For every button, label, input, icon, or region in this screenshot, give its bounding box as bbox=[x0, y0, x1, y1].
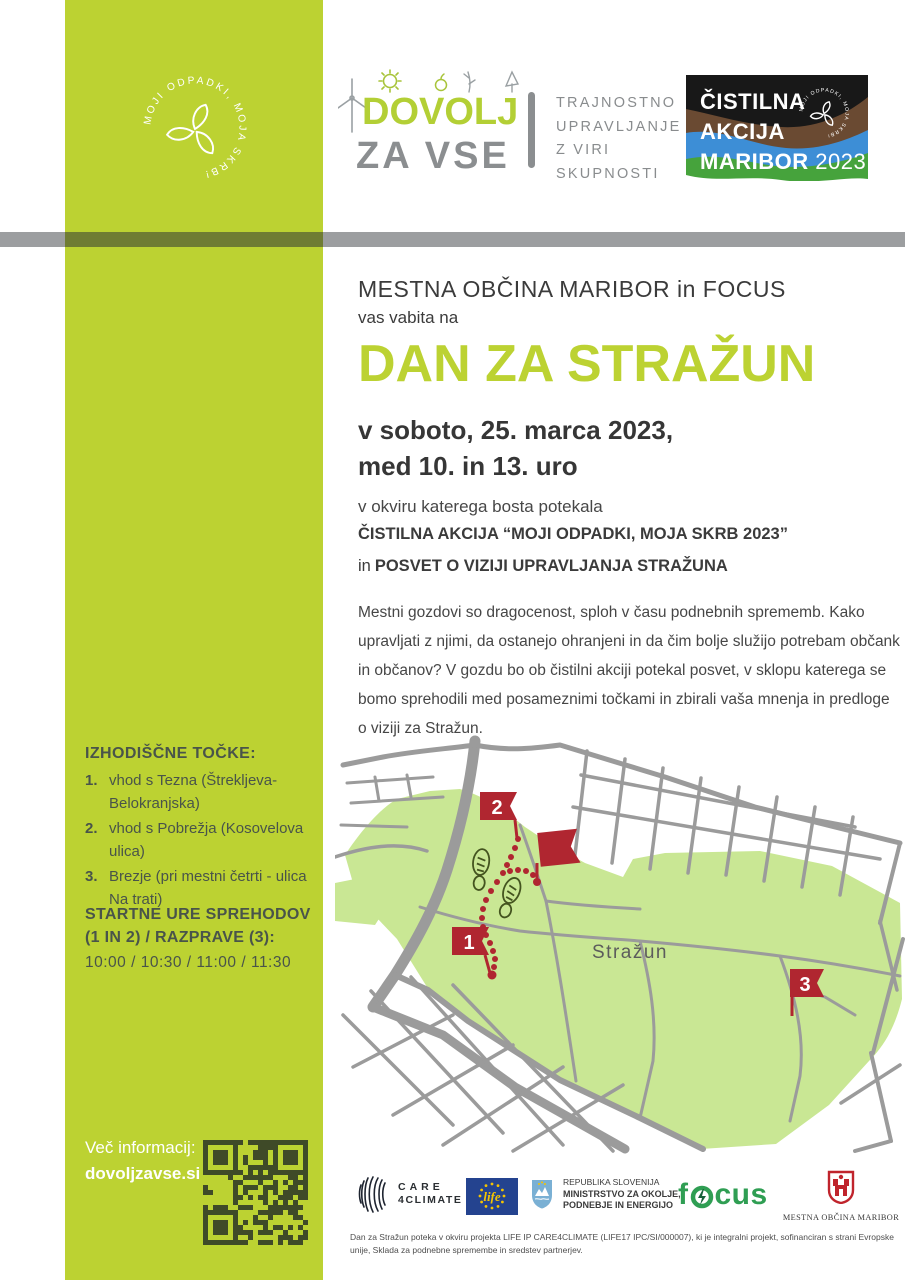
marker-1-label: 1 bbox=[463, 932, 474, 954]
event-1-line: ČISTILNA AKCIJA “MOJI ODPADKI, MOJA SKRB… bbox=[358, 525, 788, 544]
care4climate-text: CARE 4CLIMATE bbox=[398, 1181, 463, 1207]
logo-tagline: TRAJNOSTNO UPRAVLJANJE Z VIRI SKUPNOSTI bbox=[556, 92, 681, 186]
date-line-2: med 10. in 13. uro bbox=[358, 448, 673, 484]
badge-city: MARIBOR bbox=[700, 149, 809, 174]
slovenia-coat-of-arms-icon bbox=[530, 1179, 554, 1209]
event-poster: MOJI ODPADKI, MOJA SKRB! IZHODIŠČNE TOČK… bbox=[0, 0, 905, 1280]
tagline-line: UPRAVLJANJE bbox=[556, 116, 681, 140]
starting-points-heading: IZHODIŠČNE TOČKE: bbox=[85, 745, 313, 763]
point-number: 2. bbox=[85, 818, 109, 863]
meeting-flag-icon bbox=[537, 829, 580, 867]
badge-circle-logo: MOJI ODPADKI, MOJA SKRB! bbox=[796, 85, 852, 141]
care4climate-logo: CARE 4CLIMATE bbox=[354, 1174, 463, 1214]
maribor-logo: MESTNA OBČINA MARIBOR bbox=[778, 1170, 904, 1222]
ministry-line-2: MINISTRSTVO ZA OKOLJE, bbox=[563, 1189, 681, 1201]
logo-word-1: DOVOLJ bbox=[362, 91, 518, 133]
more-info-label: Več informacij: bbox=[85, 1138, 200, 1158]
start-times-heading: STARTNE URE SPREHODOV (1 IN 2) / RAZPRAV… bbox=[85, 903, 315, 949]
invite-line: vas vabita na bbox=[358, 308, 458, 328]
marker-2-label: 2 bbox=[491, 797, 502, 819]
cleanup-action-badge: ČISTILNA AKCIJA MARIBOR 2023 MOJI ODPADK… bbox=[686, 75, 868, 187]
description-paragraph: Mestni gozdovi so dragocenost, sploh v č… bbox=[358, 598, 900, 743]
qr-code[interactable] bbox=[203, 1140, 308, 1245]
list-item: 2. vhod s Pobrežja (Kosovelova ulica) bbox=[85, 818, 313, 863]
starting-points-section: IZHODIŠČNE TOČKE: 1. vhod s Tezna (Štrek… bbox=[85, 745, 313, 914]
apple-icon bbox=[436, 74, 447, 91]
event-date: v soboto, 25. marca 2023, med 10. in 13.… bbox=[358, 412, 673, 484]
logo-divider bbox=[528, 92, 535, 168]
care4climate-icon bbox=[354, 1174, 390, 1214]
date-line-1: v soboto, 25. marca 2023, bbox=[358, 412, 673, 448]
map-area-label: Stražun bbox=[592, 942, 668, 963]
badge-line-2: AKCIJA bbox=[700, 119, 785, 145]
focus-f: f bbox=[678, 1178, 689, 1212]
organizers-line: MESTNA OBČINA MARIBOR in FOCUS bbox=[358, 276, 786, 303]
list-item: 1. vhod s Tezna (Štrekljeva-Belokranjska… bbox=[85, 770, 313, 815]
care-line-1: CARE bbox=[398, 1181, 463, 1194]
leaf-knot-icon bbox=[166, 105, 218, 155]
ministry-line-3: PODNEBJE IN ENERGIJO bbox=[563, 1200, 681, 1212]
logo-word-2: ZA VSE bbox=[356, 135, 510, 177]
point-number: 1. bbox=[85, 770, 109, 815]
campaign-circle-logo: MOJI ODPADKI, MOJA SKRB! bbox=[137, 70, 253, 186]
ministry-line-1: REPUBLIKA SLOVENIJA bbox=[563, 1177, 681, 1189]
focus-logo: f cus bbox=[678, 1178, 768, 1212]
focus-cus: cus bbox=[715, 1178, 768, 1212]
tagline-line: TRAJNOSTNO bbox=[556, 92, 681, 116]
twig-icon bbox=[464, 72, 475, 92]
ministry-text: REPUBLIKA SLOVENIJA MINISTRSTVO ZA OKOLJ… bbox=[563, 1177, 681, 1212]
fine-print: Dan za Stražun poteka v okviru projekta … bbox=[350, 1231, 900, 1257]
focus-o-icon bbox=[690, 1185, 714, 1209]
event-2-title: POSVET O VIZIJI UPRAVLJANJA STRAŽUNA bbox=[375, 557, 728, 575]
pinwheel-icon bbox=[506, 72, 518, 92]
life-wordmark: life bbox=[483, 1189, 501, 1204]
frame-line: v okviru katerega bosta potekala bbox=[358, 497, 603, 517]
event-2-line: inPOSVET O VIZIJI UPRAVLJANJA STRAŽUNA bbox=[358, 557, 728, 576]
maribor-text: MESTNA OBČINA MARIBOR bbox=[778, 1213, 904, 1222]
partner-logos: CARE 4CLIMATE life REPUBLIKA SLOVEN bbox=[350, 1170, 905, 1232]
event-title: DAN ZA STRAŽUN bbox=[358, 334, 815, 394]
care-line-2: 4CLIMATE bbox=[398, 1194, 463, 1207]
badge-year: 2023 bbox=[815, 149, 866, 174]
dovolj-za-vse-logo: DOVOLJ ZA VSE bbox=[338, 68, 543, 186]
maribor-coat-of-arms-icon bbox=[827, 1170, 855, 1204]
divider-bar-overlap bbox=[65, 232, 323, 247]
website-link[interactable]: dovoljzavse.si bbox=[85, 1164, 200, 1184]
marker-3-label: 3 bbox=[799, 974, 810, 996]
green-sidebar: MOJI ODPADKI, MOJA SKRB! IZHODIŠČNE TOČK… bbox=[65, 0, 323, 1280]
badge-line-1: ČISTILNA bbox=[700, 89, 805, 115]
start-times-section: STARTNE URE SPREHODOV (1 IN 2) / RAZPRAV… bbox=[85, 903, 315, 972]
eu-life-logo: life bbox=[466, 1178, 518, 1215]
sun-icon bbox=[379, 70, 401, 92]
more-info-block: Več informacij: dovoljzavse.si bbox=[85, 1138, 200, 1184]
point-label: vhod s Tezna (Štrekljeva-Belokranjska) bbox=[109, 770, 313, 815]
event-2-prefix: in bbox=[358, 557, 371, 575]
start-times-values: 10:00 / 10:30 / 11:00 / 11:30 bbox=[85, 954, 315, 972]
point-label: vhod s Pobrežja (Kosovelova ulica) bbox=[109, 818, 313, 863]
leaf-knot-icon bbox=[810, 102, 835, 126]
strazun-map: 2 1 3 Stražun bbox=[335, 735, 905, 1155]
tagline-line: Z VIRI bbox=[556, 139, 681, 163]
badge-line-3: MARIBOR 2023 bbox=[700, 149, 866, 175]
ministry-logo: REPUBLIKA SLOVENIJA MINISTRSTVO ZA OKOLJ… bbox=[530, 1177, 681, 1212]
tagline-line: SKUPNOSTI bbox=[556, 163, 681, 187]
